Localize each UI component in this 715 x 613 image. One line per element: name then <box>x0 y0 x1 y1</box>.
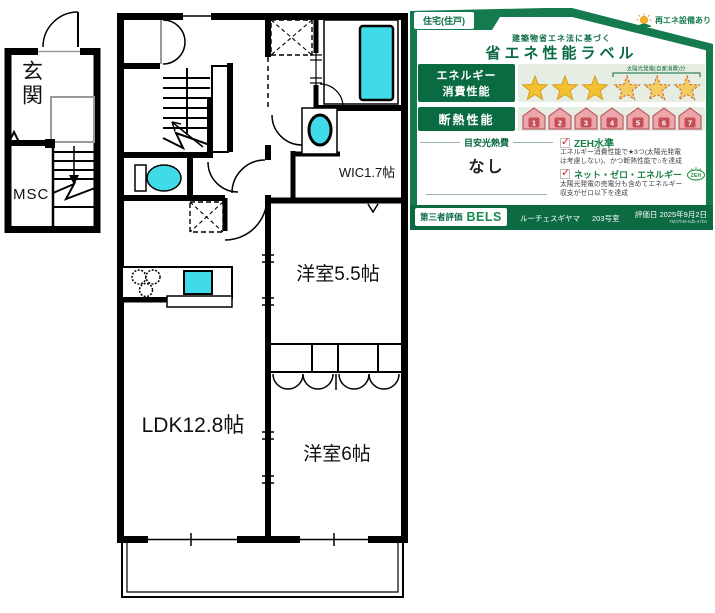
net-zero-label: ネット・ゼロ・エネルギー <box>574 168 682 181</box>
bathtub-icon <box>360 26 393 100</box>
insulation-level-icon: 1 <box>523 108 545 129</box>
svg-text:5: 5 <box>636 119 640 128</box>
insulation-level-icon: 5 <box>627 108 649 129</box>
energy-label-line2: 消費性能 <box>443 83 491 99</box>
energy-row-label: エネルギー 消費性能 <box>418 64 515 102</box>
star-rating-zone: 太陽光発電(自家消費)分 <box>518 64 705 102</box>
net-zero-note-line2: 収支がゼロ以下を達成 <box>560 189 705 198</box>
insulation-zone: 1 2 3 4 <box>518 107 705 131</box>
zeh-badge-icon: ZEH <box>686 167 708 181</box>
filled-star-icons <box>523 76 608 100</box>
svg-text:1: 1 <box>532 119 536 128</box>
zeh-note-line1: エネルギー消費性能で★3つ(太陽光発電 <box>560 148 705 157</box>
net-zero-note: 太陽光発電の売電分も含めてエネルギー 収支がゼロ以下を達成 <box>560 180 705 198</box>
renewable-text: 再エネ設備あり <box>655 15 711 26</box>
zeh-note-line2: は考慮しない)、かつ断熱性能で⌂を達成 <box>560 157 705 166</box>
evaluation-code: 7M37bM-6db-47b0 <box>669 219 707 224</box>
sun-icon <box>636 13 652 27</box>
bels-badge: 第三者評価 BELS <box>415 208 507 226</box>
building-type-badge: 住宅(住戸) <box>414 12 474 29</box>
wic-label: WIC1.7帖 <box>339 165 395 180</box>
checkbox-checked-icon: ✓ <box>560 138 570 148</box>
utility-cost-header: 目安光熱費 <box>420 136 553 149</box>
svg-text:7: 7 <box>688 119 692 128</box>
svg-text:3: 3 <box>584 119 588 128</box>
real-estate-listing-image: 玄関 MSC <box>0 0 715 613</box>
insulation-label-text: 断熱性能 <box>438 111 494 128</box>
evaluator-name: BELS <box>467 210 502 224</box>
toilet-icon <box>135 165 181 191</box>
ldk-label: LDK12.8帖 <box>142 414 245 437</box>
building-type-text: 住宅(住戸) <box>423 14 465 27</box>
solar-bracket-note: 太陽光発電(自家消費)分 <box>627 65 686 73</box>
divider <box>426 194 547 195</box>
washbasin-icon <box>302 108 337 154</box>
net-zero-row: ✓ ネット・ゼロ・エネルギー ZEH <box>560 167 708 181</box>
energy-performance-label: 住宅(住戸) 再エネ設備あり 建築物省エネ法に基づく 省エネ性能ラベル エネルギ… <box>410 8 713 230</box>
unit-number: 203号室 <box>592 213 620 224</box>
insulation-level-icon: 7 <box>679 108 701 129</box>
svg-text:ZEH: ZEH <box>691 173 702 179</box>
property-name: ルーチェスギヤマ <box>520 213 580 224</box>
zeh-standard-note: エネルギー消費性能で★3つ(太陽光発電 は考慮しない)、かつ断熱性能で⌂を達成 <box>560 148 705 166</box>
energy-label-line1: エネルギー <box>437 67 497 83</box>
entrance-label: 玄関 <box>20 60 43 108</box>
net-zero-note-line1: 太陽光発電の売電分も含めてエネルギー <box>560 180 705 189</box>
star-rating: 太陽光発電(自家消費)分 <box>518 64 705 102</box>
insulation-level-icon: 4 <box>601 108 623 129</box>
label-footer: 第三者評価 BELS ルーチェスギヤマ 203号室 評価日 2025年9月2日 … <box>410 205 713 230</box>
utility-cost-value: なし <box>420 153 553 177</box>
frame-right <box>706 48 713 230</box>
checkbox-checked-icon: ✓ <box>560 169 570 179</box>
msc-label: MSC <box>13 186 49 203</box>
insulation-level-icon: 3 <box>575 108 597 129</box>
utility-cost-label: 目安光熱費 <box>464 136 509 149</box>
bedroom1-label: 洋室5.5帖 <box>296 263 379 285</box>
evaluator-label: 第三者評価 <box>420 211 463 223</box>
balcony <box>122 543 403 597</box>
svg-text:6: 6 <box>662 119 666 128</box>
insulation-level-icon: 2 <box>549 108 571 129</box>
sink-icon <box>184 271 212 294</box>
insulation-level-icon: 6 <box>653 108 675 129</box>
insulation-levels: 1 2 3 4 <box>518 107 705 131</box>
label-title: 省エネ性能ラベル <box>410 42 713 63</box>
renewable-badge: 再エネ設備あり <box>636 13 711 27</box>
property-info: ルーチェスギヤマ 203号室 <box>520 213 620 224</box>
bedroom2-label: 洋室6帖 <box>303 443 371 465</box>
insulation-row-label: 断熱性能 <box>418 107 515 131</box>
main-unit-walls <box>117 11 405 597</box>
entrance-door-icon <box>43 12 78 47</box>
svg-text:2: 2 <box>558 119 562 128</box>
solar-star-icons <box>615 76 700 100</box>
